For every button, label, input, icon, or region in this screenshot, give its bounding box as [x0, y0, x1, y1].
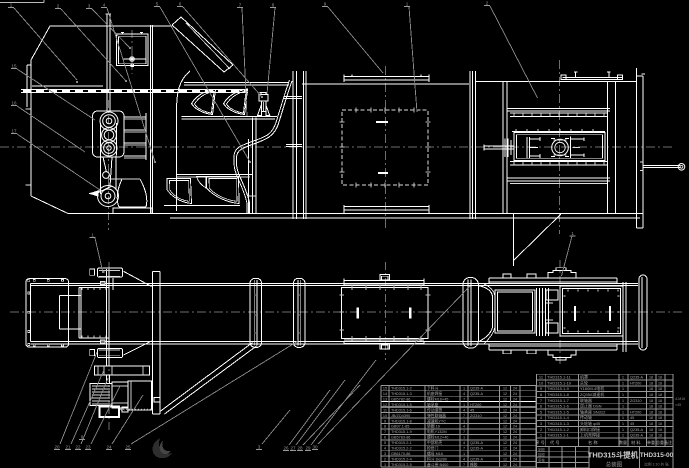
svg-text:Q235-A: Q235-A — [630, 428, 644, 432]
svg-text:THD315-00: THD315-00 — [640, 452, 674, 459]
svg-text:THD315.1-4: THD315.1-4 — [547, 415, 570, 420]
svg-text:THD315.1-8: THD315.1-8 — [391, 419, 412, 423]
svg-text:4: 4 — [463, 392, 465, 396]
svg-text:橡胶: 橡胶 — [470, 462, 478, 467]
svg-text:制图: 制图 — [538, 447, 545, 452]
svg-text:20: 20 — [54, 445, 60, 450]
svg-text:THD315.1-11: THD315.1-11 — [547, 375, 571, 380]
svg-text:Q235-A: Q235-A — [470, 387, 484, 391]
svg-text:24: 24 — [513, 463, 517, 467]
svg-text:卸料口焊接: 卸料口焊接 — [580, 426, 600, 432]
svg-text:备注: 备注 — [664, 439, 672, 445]
svg-text:18: 18 — [658, 393, 662, 397]
svg-text:1: 1 — [463, 419, 465, 423]
svg-text:12: 12 — [503, 414, 507, 418]
svg-text:GB6170-86: GB6170-86 — [391, 452, 410, 456]
svg-text:18: 18 — [658, 434, 662, 438]
svg-text:下料斗: 下料斗 — [427, 386, 439, 391]
svg-text:12: 12 — [503, 436, 507, 440]
svg-text:28: 28 — [297, 446, 303, 451]
svg-text:12: 12 — [503, 403, 507, 407]
svg-text:HT200: HT200 — [630, 381, 641, 385]
svg-text:7: 7 — [463, 463, 465, 467]
svg-text:18: 18 — [658, 428, 662, 432]
svg-text:18: 18 — [649, 428, 653, 432]
svg-text:Q235-A: Q235-A — [470, 457, 484, 461]
svg-text:GB5783-86: GB5783-86 — [391, 436, 410, 440]
svg-text:18: 18 — [649, 405, 653, 409]
svg-text:18: 18 — [649, 376, 653, 380]
svg-text:12: 12 — [503, 463, 507, 467]
svg-text:24: 24 — [513, 387, 517, 391]
svg-text:15: 15 — [11, 64, 17, 69]
svg-text:总重: 总重 — [656, 439, 664, 445]
svg-text:头轮: 头轮 — [580, 379, 588, 385]
svg-text:18: 18 — [658, 387, 662, 391]
svg-text:机座焊接: 机座焊接 — [427, 391, 442, 396]
svg-text:THD315.1-3: THD315.1-3 — [391, 392, 412, 396]
svg-text:THD315.1-8: THD315.1-8 — [547, 392, 570, 397]
svg-text:18: 18 — [658, 405, 662, 409]
svg-text:GB97.1-85: GB97.1-85 — [391, 425, 409, 429]
svg-text:18: 18 — [658, 399, 662, 403]
svg-text:Q235-A: Q235-A — [630, 376, 644, 380]
svg-text:24: 24 — [513, 408, 517, 412]
svg-text:18: 18 — [649, 416, 653, 420]
svg-text:减速机YTC: 减速机YTC — [427, 418, 446, 423]
svg-text:THD315.2-1: THD315.2-1 — [391, 441, 412, 445]
svg-text:JB/ZQ4390: JB/ZQ4390 — [391, 414, 410, 418]
svg-text:材 料: 材 料 — [631, 439, 641, 446]
svg-text:24: 24 — [513, 403, 517, 407]
svg-text:机罩: 机罩 — [580, 374, 588, 380]
svg-text:ZG310: ZG310 — [630, 399, 642, 403]
svg-text:Y160M-4电机: Y160M-4电机 — [580, 385, 604, 391]
svg-text:12: 12 — [503, 397, 507, 401]
svg-text:THD315.1-1: THD315.1-1 — [547, 433, 570, 438]
svg-text:THD315.1-6: THD315.1-6 — [547, 404, 570, 409]
svg-text:11: 11 — [383, 408, 387, 412]
svg-text:12: 12 — [503, 430, 507, 434]
svg-text:12: 12 — [503, 441, 507, 445]
svg-text:45: 45 — [470, 408, 474, 412]
svg-text:THD315.2-5: THD315.2-5 — [391, 463, 412, 467]
svg-text:THD315.1-2: THD315.1-2 — [547, 427, 570, 432]
svg-text:18: 18 — [649, 410, 653, 414]
svg-text:8: 8 — [384, 425, 386, 429]
svg-text:18: 18 — [649, 399, 653, 403]
svg-text:畚斗带 B400: 畚斗带 B400 — [427, 462, 448, 467]
svg-text:ZQ350减速机: ZQ350减速机 — [580, 391, 604, 397]
svg-text:24: 24 — [513, 419, 517, 423]
svg-text:联轴器: 联轴器 — [580, 397, 592, 403]
svg-text:18: 18 — [649, 422, 653, 426]
svg-text:THD315.2-4: THD315.2-4 — [391, 457, 412, 461]
svg-text:10: 10 — [383, 414, 387, 418]
svg-text:螺栓M12×40: 螺栓M12×40 — [427, 435, 448, 440]
svg-text:18: 18 — [658, 381, 662, 385]
svg-text:18: 18 — [658, 376, 662, 380]
svg-text:17: 17 — [11, 129, 17, 134]
svg-text:12: 12 — [383, 403, 387, 407]
svg-text:12: 12 — [503, 419, 507, 423]
svg-text:序 号: 序 号 — [535, 439, 545, 446]
svg-text:4: 4 — [463, 441, 465, 445]
svg-text:1: 1 — [384, 463, 386, 467]
svg-text:THD315.1-6: THD315.1-6 — [391, 408, 412, 412]
svg-text:24: 24 — [513, 447, 517, 451]
svg-text:18: 18 — [649, 393, 653, 397]
svg-text:7: 7 — [384, 430, 386, 434]
svg-text:代 号: 代 号 — [550, 439, 560, 446]
svg-text:轴承座: 轴承座 — [427, 402, 439, 407]
svg-text:22: 22 — [75, 445, 81, 450]
svg-text:HT200: HT200 — [630, 410, 641, 414]
svg-text:12: 12 — [503, 408, 507, 412]
svg-text:总装图: 总装图 — [606, 461, 623, 468]
svg-text:18: 18 — [649, 381, 653, 385]
svg-text:23: 23 — [85, 445, 91, 450]
svg-text:GB5782-86: GB5782-86 — [391, 397, 410, 401]
svg-text:Q235-A: Q235-A — [470, 441, 484, 445]
svg-text:螺栓M16×45: 螺栓M16×45 — [427, 396, 448, 401]
svg-text:16: 16 — [11, 101, 17, 106]
svg-text:比例 1:10 共 张: 比例 1:10 共 张 — [644, 462, 669, 467]
svg-text:THD315.1-2: THD315.1-2 — [391, 387, 412, 391]
svg-text:45: 45 — [630, 422, 634, 426]
svg-text:Q235-A: Q235-A — [470, 447, 484, 451]
svg-text:Q235-A: Q235-A — [630, 434, 644, 438]
svg-text:24: 24 — [106, 445, 112, 450]
svg-text:18: 18 — [658, 416, 662, 420]
svg-text:4: 4 — [463, 457, 465, 461]
svg-text:电机Y132M: 电机Y132M — [427, 429, 447, 434]
svg-text:头轮轴 φ45: 头轮轴 φ45 — [580, 420, 601, 426]
svg-text:12: 12 — [503, 457, 507, 461]
svg-text:24: 24 — [513, 392, 517, 396]
svg-text:4: 4 — [463, 408, 465, 412]
svg-text:24: 24 — [513, 425, 517, 429]
svg-text:6: 6 — [384, 436, 386, 440]
svg-text:26: 26 — [283, 446, 289, 451]
svg-text:4-M16: 4-M16 — [675, 397, 685, 401]
svg-text:料斗 Dg280: 料斗 Dg280 — [427, 456, 447, 461]
svg-text:18: 18 — [658, 410, 662, 414]
svg-text:THD315.1-7: THD315.1-7 — [547, 398, 570, 403]
svg-text:24: 24 — [513, 436, 517, 440]
svg-text:逆止器 DSN: 逆止器 DSN — [580, 403, 602, 409]
svg-text:ZG310: ZG310 — [470, 414, 482, 418]
svg-text:12: 12 — [503, 425, 507, 429]
svg-text:轴承座 SN312: 轴承座 SN312 — [580, 408, 606, 414]
svg-text:24: 24 — [513, 414, 517, 418]
svg-text:12: 12 — [503, 447, 507, 451]
svg-text:12: 12 — [503, 452, 507, 456]
svg-text:THD315.1-5: THD315.1-5 — [391, 403, 412, 407]
svg-text:15: 15 — [383, 387, 387, 391]
svg-text:5: 5 — [384, 441, 386, 445]
svg-text:29: 29 — [305, 446, 311, 451]
svg-text:THD315.1-5: THD315.1-5 — [547, 409, 570, 414]
svg-text:25: 25 — [125, 445, 131, 450]
svg-text:THD315.1-9: THD315.1-9 — [391, 430, 412, 434]
svg-text:THD315.1-3: THD315.1-3 — [547, 421, 570, 426]
svg-text:14: 14 — [383, 392, 387, 396]
svg-text:THD315.2-2: THD315.2-2 — [391, 447, 412, 451]
svg-text:7: 7 — [463, 430, 465, 434]
svg-text:27: 27 — [290, 446, 296, 451]
svg-text:18: 18 — [649, 434, 653, 438]
svg-text:×45: ×45 — [675, 403, 681, 407]
svg-text:13: 13 — [383, 397, 387, 401]
svg-text:检修门: 检修门 — [427, 446, 439, 451]
svg-text:1: 1 — [463, 436, 465, 440]
svg-text:THD315.1-9: THD315.1-9 — [547, 386, 570, 391]
svg-text:单重: 单重 — [647, 439, 655, 445]
svg-text:Q235-A: Q235-A — [470, 392, 484, 396]
svg-text:上机壳焊接: 上机壳焊接 — [580, 432, 600, 438]
svg-text:9: 9 — [384, 419, 386, 423]
svg-text:10: 10 — [539, 380, 544, 385]
svg-text:7: 7 — [463, 397, 465, 401]
svg-text:2: 2 — [384, 457, 386, 461]
svg-text:30: 30 — [312, 445, 318, 450]
svg-text:垫圈 16: 垫圈 16 — [427, 424, 440, 429]
svg-text:数量: 数量 — [619, 439, 627, 445]
svg-text:12: 12 — [503, 387, 507, 391]
svg-text:螺母 M16: 螺母 M16 — [427, 451, 443, 456]
svg-text:1: 1 — [463, 387, 465, 391]
svg-text:18: 18 — [649, 387, 653, 391]
svg-text:21: 21 — [65, 445, 71, 450]
svg-text:传动滚筒: 传动滚筒 — [427, 407, 442, 412]
svg-text:THD315.1-10: THD315.1-10 — [547, 380, 572, 385]
svg-text:7: 7 — [463, 414, 465, 418]
svg-text:24: 24 — [513, 397, 517, 401]
svg-text:中部机壳: 中部机壳 — [427, 440, 442, 445]
svg-text:7: 7 — [463, 447, 465, 451]
svg-text:HT200: HT200 — [470, 403, 481, 407]
svg-text:12: 12 — [503, 392, 507, 396]
svg-text:18: 18 — [658, 422, 662, 426]
svg-text:1: 1 — [463, 403, 465, 407]
svg-text:24: 24 — [513, 457, 517, 461]
svg-text:4: 4 — [463, 425, 465, 429]
svg-text:描图: 描图 — [538, 452, 545, 457]
svg-text:1: 1 — [463, 452, 465, 456]
svg-text:3: 3 — [384, 452, 386, 456]
svg-text:THD315斗提机: THD315斗提机 — [588, 450, 639, 460]
svg-text:审核: 审核 — [538, 458, 545, 463]
svg-text:24: 24 — [513, 441, 517, 445]
svg-text:24: 24 — [513, 452, 517, 456]
svg-text:4: 4 — [384, 447, 386, 451]
svg-text:弹性联轴器: 弹性联轴器 — [427, 413, 446, 418]
svg-text:传动轴: 传动轴 — [580, 414, 592, 420]
svg-text:24: 24 — [513, 430, 517, 434]
svg-text:45: 45 — [630, 416, 634, 420]
svg-text:名 称: 名 称 — [588, 439, 598, 446]
